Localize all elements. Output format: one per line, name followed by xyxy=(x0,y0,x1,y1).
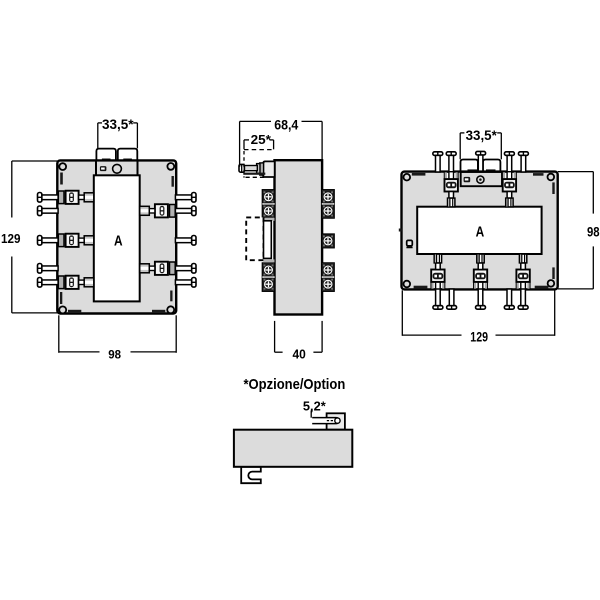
svg-text:129: 129 xyxy=(1,231,21,246)
svg-text:40: 40 xyxy=(293,346,306,361)
svg-text:25*: 25* xyxy=(251,132,272,147)
svg-text:5,2*: 5,2* xyxy=(303,398,327,413)
svg-text:33,5*: 33,5* xyxy=(102,117,134,132)
svg-text:98: 98 xyxy=(587,225,600,240)
svg-text:129: 129 xyxy=(470,329,488,345)
svg-text:A: A xyxy=(114,233,123,249)
svg-text:33,5*: 33,5* xyxy=(466,128,498,143)
svg-text:68,4: 68,4 xyxy=(274,116,298,132)
svg-text:*Opzione/Option: *Opzione/Option xyxy=(244,377,346,393)
svg-text:98: 98 xyxy=(108,347,121,361)
svg-text:A: A xyxy=(476,225,485,241)
